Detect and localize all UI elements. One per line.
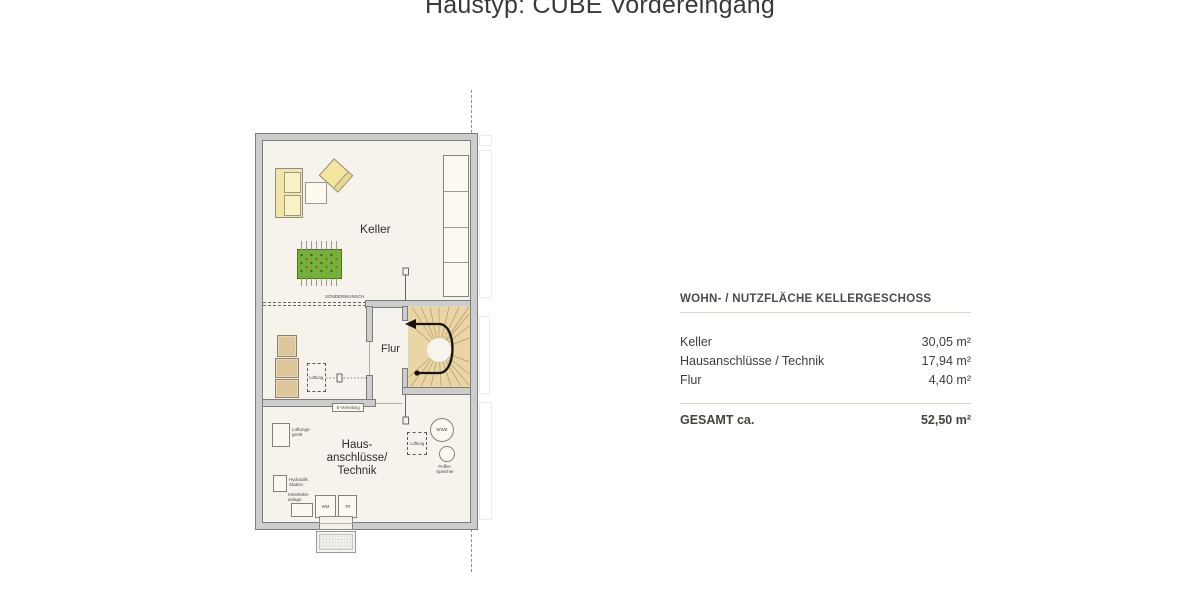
- lounge-chair-seat: [319, 158, 354, 192]
- sonderwunsch-label: SONDERWUNSCH: [325, 294, 364, 299]
- total-value: 52,50 m²: [921, 413, 971, 427]
- label-line: Speicher: [436, 469, 454, 474]
- sonderwunsch-dashed-line: [263, 302, 366, 306]
- basement-window: [319, 516, 353, 530]
- lueftungsgeraet-box: [272, 423, 290, 447]
- neighbour-outline: [479, 150, 492, 298]
- label-line: Haus-: [305, 439, 409, 452]
- hydraulik-label: Hydraulik Station: [289, 477, 308, 487]
- foosball-table: [297, 249, 342, 279]
- lounge-chair-back: [333, 172, 352, 192]
- wwb-label: WWB: [437, 428, 448, 433]
- lueftung-label: Lüftung: [410, 441, 424, 446]
- lounge-chair: [318, 158, 354, 194]
- area-table-header: WOHN- / NUTZFLÄCHE KELLERGESCHOSS: [680, 293, 971, 305]
- row-value: 17,94 m²: [922, 352, 971, 371]
- lueftung-label: Lüftung: [309, 375, 323, 380]
- table-row: Flur 4,40 m²: [680, 371, 971, 390]
- sofa: [275, 168, 303, 218]
- room-label-keller: Keller: [360, 222, 391, 236]
- sofa-cushion: [284, 195, 301, 216]
- hydraulik-box: [273, 475, 287, 492]
- shelf-unit: [443, 155, 469, 297]
- label-line: anlage: [288, 497, 310, 502]
- shelf-divider: [444, 262, 468, 263]
- row-label: Keller: [680, 333, 712, 352]
- row-value: 30,05 m²: [922, 333, 971, 352]
- table-row: Hausanschlüsse / Technik 17,94 m²: [680, 352, 971, 371]
- row-value: 4,40 m²: [929, 371, 971, 390]
- table-rule: [680, 403, 971, 404]
- area-table-rows: Keller 30,05 m² Hausanschlüsse / Technik…: [680, 333, 971, 390]
- shelf-divider: [444, 227, 468, 228]
- storage-crate: [277, 335, 297, 357]
- kleinhebe-label: Kleinhebe- anlage: [288, 492, 310, 502]
- lueftung-dashed-box: Lüftung: [307, 363, 326, 392]
- tr-label: TR: [345, 504, 351, 509]
- page: Haustyp: CUBE Vordereingang: [0, 0, 1200, 600]
- light-well: [316, 531, 356, 553]
- neighbour-outline: [479, 135, 492, 146]
- dryer-box: TR: [338, 495, 357, 518]
- label-line: gerät: [292, 432, 311, 437]
- neighbour-outline: [479, 316, 490, 394]
- table-total-row: GESAMT ca. 52,50 m²: [680, 413, 971, 427]
- washing-machine-box: WM: [315, 495, 336, 518]
- label-line: anschlüsse/: [305, 452, 409, 465]
- room-label-technik: Haus- anschlüsse/ Technik: [305, 439, 409, 478]
- floorplan: SONDERWUNSCH Lüftung E-Verteilung Lüftun…: [255, 133, 478, 530]
- wwb-circle: WWB: [430, 418, 454, 442]
- shelf-divider: [444, 191, 468, 192]
- kleinhebe-box: [291, 503, 313, 517]
- puffer-speicher-circle: [439, 446, 455, 462]
- wall-storage-top: [366, 306, 373, 342]
- row-label: Flur: [680, 371, 702, 390]
- total-label: GESAMT ca.: [680, 413, 754, 427]
- lueftungsgeraet-label: Lüftungs- gerät: [292, 427, 311, 437]
- area-table: WOHN- / NUTZFLÄCHE KELLERGESCHOSS Keller…: [680, 293, 971, 427]
- room-label-flur: Flur: [381, 343, 400, 355]
- label-line: Technik: [305, 465, 409, 478]
- e-verteilung-label: E-Verteilung: [336, 405, 359, 410]
- wall-stair-technik: [402, 387, 471, 395]
- page-title: Haustyp: CUBE Vordereingang: [0, 0, 1200, 20]
- neighbour-outline: [479, 402, 492, 520]
- sofa-cushion: [284, 172, 301, 193]
- table-row: Keller 30,05 m²: [680, 333, 971, 352]
- puffer-speicher-label: Puffer- Speicher: [436, 464, 454, 474]
- table-rule: [680, 312, 971, 313]
- storage-crate: [275, 358, 299, 378]
- wm-label: WM: [322, 504, 330, 509]
- storage-crate: [275, 379, 299, 398]
- lueftung-dashed-box-technik: Lüftung: [407, 432, 427, 455]
- e-verteilung-box: E-Verteilung: [332, 403, 364, 412]
- label-line: Station: [289, 482, 308, 487]
- window-line: [320, 523, 352, 524]
- light-well-grate: [319, 534, 353, 550]
- row-label: Hausanschlüsse / Technik: [680, 352, 824, 371]
- staircase: [408, 306, 470, 387]
